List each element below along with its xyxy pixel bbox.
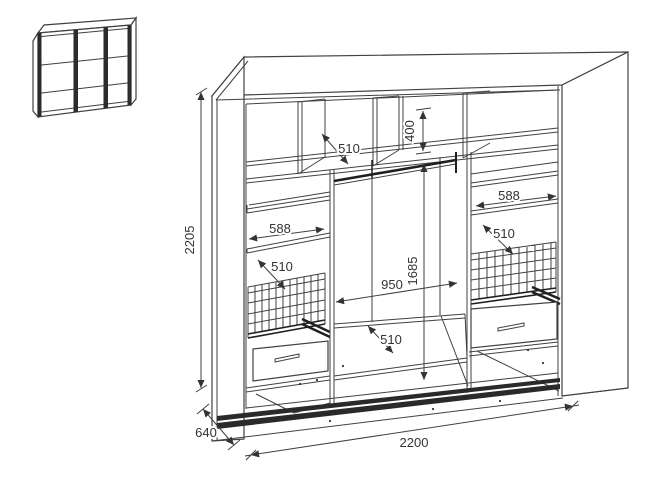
dim-label-left-shelf-depth: 510 — [271, 259, 293, 274]
track-dot — [329, 420, 331, 422]
dim-label-hanging-height: 1685 — [405, 257, 420, 286]
track-rail-2 — [217, 384, 560, 429]
dim-label-bottom-shelf-depth: 510 — [380, 332, 402, 347]
drawer-right — [471, 302, 557, 348]
technical-drawing-page: 2205 640 2200 510 400 588 51 — [0, 0, 648, 486]
track-dot — [432, 408, 434, 410]
wardrobe-interior-perspective — [212, 52, 628, 441]
dim-label-upper-compartment-height: 400 — [402, 120, 417, 142]
dim-hanging-height: 1685 — [405, 164, 424, 380]
dim-label-hanging-width: 950 — [381, 277, 403, 292]
center-bottom-shelf — [334, 314, 468, 386]
dim-label-right-shelf-depth: 510 — [493, 226, 515, 241]
cabinet-shell — [212, 52, 628, 441]
pin-hole — [527, 349, 529, 351]
dim-hanging-width: 950 — [336, 277, 457, 302]
dim-label-top-shelf-depth: 510 — [338, 141, 360, 156]
pin-hole — [342, 365, 344, 367]
pin-hole — [299, 383, 301, 385]
dim-label-right-section-width: 588 — [498, 188, 520, 203]
pin-hole — [316, 379, 318, 381]
thumb-door-stile-3 — [104, 27, 109, 109]
drawer-left — [253, 341, 328, 381]
base-track — [217, 378, 560, 429]
thumb-door-stile-1 — [38, 33, 42, 117]
dim-overall-height: 2205 — [182, 88, 207, 392]
dim-label-left-section-width: 588 — [269, 221, 291, 236]
dim-bottom-shelf-depth: 510 — [368, 326, 402, 353]
top-row-dividers — [298, 91, 490, 174]
dim-top-shelf-depth: 510 — [322, 134, 360, 164]
drawer-left-front — [253, 341, 328, 381]
wire-basket-right — [471, 242, 560, 304]
thumb-right-edge — [131, 18, 136, 105]
pin-hole — [542, 362, 544, 364]
thumb-door-stile-4 — [128, 25, 132, 106]
wardrobe-front-view-thumbnail — [33, 18, 136, 117]
dim-label-overall-height: 2205 — [182, 226, 197, 255]
track-dot — [499, 400, 501, 402]
wire-basket-left — [248, 273, 330, 338]
thumb-door-stile-2 — [74, 30, 79, 113]
dim-label-overall-depth: 640 — [195, 425, 217, 440]
right-side-panel-face — [562, 52, 628, 396]
dim-right-section-width: 588 — [476, 188, 556, 206]
thumb-left-side-panel — [33, 33, 38, 117]
dim-label-overall-width: 2200 — [400, 435, 429, 450]
